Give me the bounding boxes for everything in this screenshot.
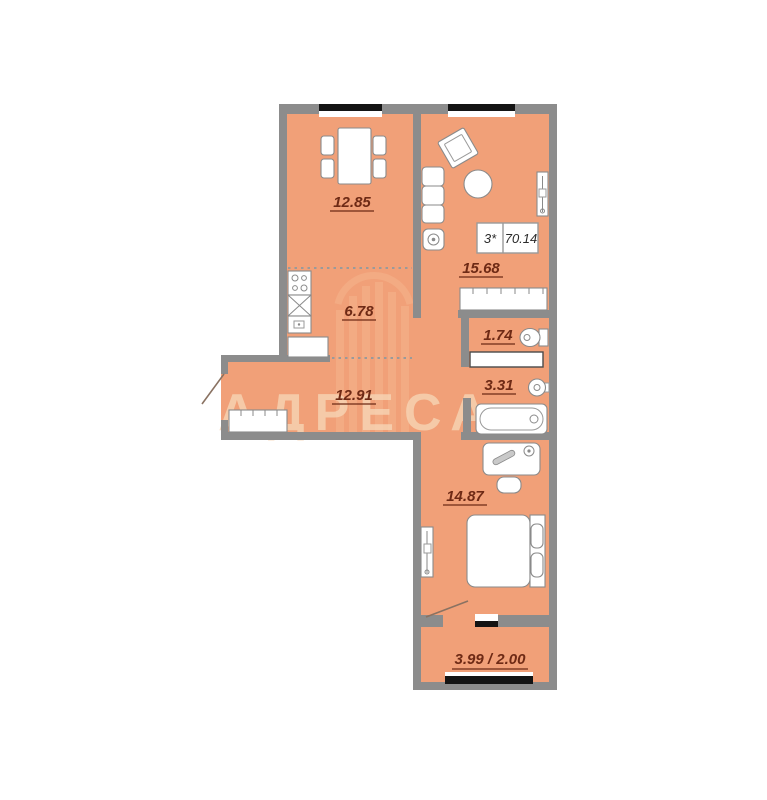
dining-table-icon (338, 128, 371, 184)
floor-plan-page: АДРЕСА (0, 0, 767, 800)
speaker-icon (423, 229, 444, 250)
window-dining-glass (319, 104, 382, 111)
wall-entry-stub-bottom (221, 420, 228, 432)
bed-icon (467, 515, 545, 587)
window-balcony-sill (445, 672, 533, 676)
living-area-label: 15.68 (462, 260, 500, 277)
wall-left-kitchen (279, 104, 287, 362)
hallway-closet-icon (229, 410, 287, 432)
stove-icon (288, 271, 311, 295)
wall-balcony-left (413, 615, 421, 690)
chair-icon (373, 136, 386, 155)
wall-balcony-partition-left (421, 615, 443, 627)
window-balcony-glass (445, 676, 533, 684)
bathtub-icon (476, 404, 547, 434)
window-bedroom-balcony-glass (475, 621, 498, 627)
desk-chair-icon (497, 477, 521, 493)
cabinet-knob (298, 323, 300, 325)
cup-dot (527, 449, 530, 452)
hallway-area-label: 12.91 (335, 387, 373, 404)
window-bedroom-balcony (475, 614, 498, 621)
storage-cabinet-icon (470, 352, 543, 367)
dining-area-label: 12.85 (333, 194, 371, 211)
room-bathroom: 3.31 (476, 377, 549, 434)
pillow-icon (531, 524, 543, 548)
floor-plan: АДРЕСА (0, 0, 767, 800)
window-living-glass (448, 104, 515, 111)
desk-icon (483, 443, 540, 475)
apartment-type-label: 3* (484, 231, 497, 246)
toilet-icon (520, 329, 548, 347)
wall-hallway-bottom (221, 432, 421, 440)
wc-area-label: 1.74 (483, 327, 513, 344)
wall-divider-top-rooms (413, 114, 421, 318)
bed-mattress (467, 515, 530, 587)
round-table-icon (464, 170, 492, 198)
chair-icon (373, 159, 386, 178)
pillow-icon (531, 553, 543, 577)
wall-entry-stub-top (221, 362, 228, 374)
wall-living-bottom (458, 310, 549, 318)
wall-bedroom-left (413, 432, 421, 627)
bathroom-area-label: 3.31 (484, 377, 513, 394)
apartment-info-box: 3* 70.14 (477, 223, 538, 253)
kitchen-area-label: 6.78 (344, 303, 374, 320)
sofa-icon (422, 167, 444, 223)
chair-icon (321, 159, 334, 178)
kitchen-counter-icon (288, 337, 328, 357)
radiator-icon (537, 172, 548, 216)
wall-right-outer (549, 104, 557, 690)
wall-balcony-partition-right (498, 615, 549, 627)
wall-wc-left (461, 315, 469, 367)
radiator-icon (421, 527, 433, 577)
balcony-area-label: 3.99 / 2.00 (455, 651, 527, 668)
sideboard-icon (460, 288, 547, 310)
bedroom-area-label: 14.87 (446, 488, 484, 505)
chair-icon (321, 136, 334, 155)
apartment-total-area: 70.14 (505, 231, 538, 246)
room-balcony: 3.99 / 2.00 (452, 651, 528, 669)
